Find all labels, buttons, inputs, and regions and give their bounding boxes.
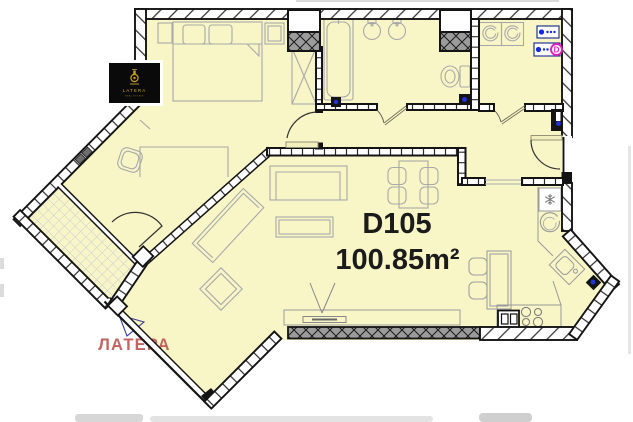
svg-text:LATERA: LATERA [123, 88, 147, 93]
svg-text:D: D [554, 46, 560, 55]
svg-text:D105: D105 [362, 208, 431, 240]
svg-text:REAL ESTATE: REAL ESTATE [125, 95, 144, 98]
svg-text:100.85m²: 100.85m² [335, 244, 459, 276]
